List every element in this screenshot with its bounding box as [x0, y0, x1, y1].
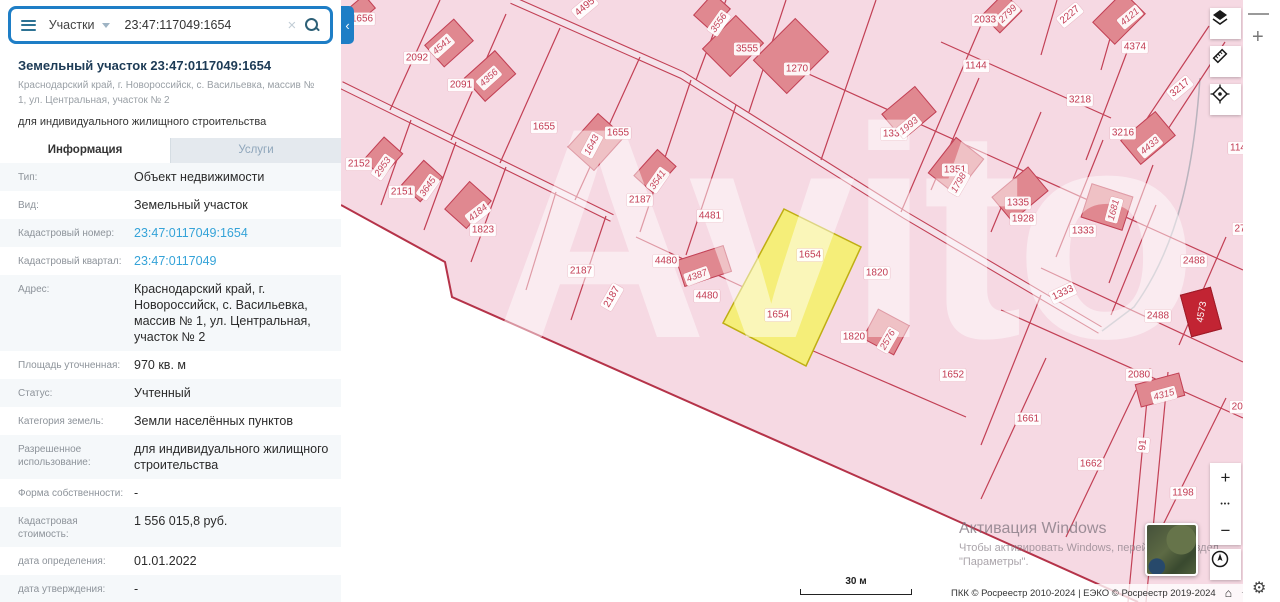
scale-bar: 30 м	[800, 576, 912, 595]
more-tools-button[interactable]: •••	[1220, 501, 1230, 508]
parcel-usage-line: для индивидуального жилищного строительс…	[18, 116, 323, 128]
info-row: Форма собственности:-	[0, 479, 341, 507]
parcel-title: Земельный участок 23:47:0117049:1654	[18, 58, 323, 73]
scale-bar-label: 30 м	[800, 576, 912, 587]
info-row: Кадастровый квартал:23:47:0117049	[0, 247, 341, 275]
menu-hamburger-icon[interactable]	[21, 20, 36, 31]
info-row-value-link[interactable]: 23:47:0117049	[134, 253, 217, 269]
info-row-label: Кадастровый квартал:	[18, 253, 134, 269]
info-row: Кадастровый номер:23:47:0117049:1654	[0, 219, 341, 247]
info-row-label: Вид:	[18, 197, 134, 213]
identify-button[interactable]	[1210, 84, 1241, 115]
info-row-label: Разрешенное использование:	[18, 441, 134, 473]
clear-search-icon[interactable]: ×	[288, 17, 297, 34]
info-row: Кадастровая стоимость:1 556 015,8 руб.	[0, 507, 341, 547]
info-row-label: дата определения:	[18, 553, 134, 569]
search-icon[interactable]	[304, 17, 320, 33]
info-row: Разрешенное использование:для индивидуал…	[0, 435, 341, 479]
info-row-value: Краснодарский край, г. Новороссийск, с. …	[134, 281, 331, 345]
map-canvas[interactable]: Avito 1656209245412091435616551643165521…	[341, 0, 1243, 602]
panel-tabs: Информация Услуги	[0, 138, 341, 164]
chevron-down-icon[interactable]	[102, 23, 110, 28]
info-row: дата определения:01.01.2022	[0, 547, 341, 575]
info-row-value: 970 кв. м	[134, 357, 186, 373]
info-row: Адрес:Краснодарский край, г. Новороссийс…	[0, 275, 341, 351]
ruler-icon	[1210, 46, 1230, 66]
viewer-zoom-out-icon[interactable]	[1248, 13, 1269, 15]
attribution-text: ПКК © Росреестр 2010-2024 | ЕЭКО © Росре…	[951, 588, 1216, 599]
layers-button[interactable]	[1210, 8, 1241, 39]
info-row-label: Площадь уточненная:	[18, 357, 134, 373]
info-row-value: для индивидуального жилищного строительс…	[134, 441, 331, 473]
search-bar: Участки ×	[8, 6, 333, 44]
info-row-label: дата утверждения:	[18, 581, 134, 597]
info-row-value: -	[134, 485, 138, 501]
viewer-zoom-in-icon[interactable]: +	[1252, 26, 1264, 49]
measure-button[interactable]	[1210, 46, 1241, 77]
layers-icon	[1210, 8, 1230, 28]
info-row-label: Адрес:	[18, 281, 134, 345]
info-row-value: Учтенный	[134, 385, 191, 401]
attribution-bar: ПКК © Росреестр 2010-2024 | ЕЭКО © Росре…	[941, 584, 1243, 602]
info-row: Категория земель:Земли населённых пункто…	[0, 407, 341, 435]
info-row-label: Категория земель:	[18, 413, 134, 429]
zoom-in-button[interactable]: +	[1221, 469, 1231, 486]
info-row-label: Статус:	[18, 385, 134, 401]
tab-information[interactable]: Информация	[0, 138, 170, 163]
panel-collapse-button[interactable]: ‹	[341, 6, 354, 44]
info-row-value: Земельный участок	[134, 197, 248, 213]
sidebar-panel: Участки × Земельный участок 23:47:011704…	[0, 0, 341, 602]
info-row-value: 01.01.2022	[134, 553, 197, 569]
cadastral-map-svg	[341, 0, 1243, 602]
search-category-dropdown[interactable]: Участки	[49, 18, 95, 32]
info-row-label: Тип:	[18, 169, 134, 185]
info-row-value: 1 556 015,8 руб.	[134, 513, 227, 541]
search-input[interactable]	[123, 17, 288, 33]
info-row-label: Кадастровая стоимость:	[18, 513, 134, 541]
gear-icon[interactable]: ⚙	[1252, 578, 1266, 598]
info-row: дата утверждения:-	[0, 575, 341, 602]
info-row-value: Земли населённых пунктов	[134, 413, 293, 429]
info-row-value: Объект недвижимости	[134, 169, 264, 185]
home-icon[interactable]: ⌂	[1225, 586, 1232, 600]
geolocation-button[interactable]	[1210, 549, 1241, 580]
zoom-panel: + ••• −	[1210, 463, 1241, 545]
info-row-value-link[interactable]: 23:47:0117049:1654	[134, 225, 248, 241]
viewer-strip: + ⚙	[1243, 0, 1280, 602]
info-row: Площадь уточненная:970 кв. м	[0, 351, 341, 379]
tab-services[interactable]: Услуги	[170, 138, 341, 163]
info-row: Статус:Учтенный	[0, 379, 341, 407]
basemap-thumbnail[interactable]	[1145, 523, 1198, 576]
info-row-value: -	[134, 581, 138, 597]
parcel-address-subtitle: Краснодарский край, г. Новороссийск, с. …	[18, 79, 323, 108]
geolocation-icon	[1210, 549, 1230, 569]
info-row: Тип:Объект недвижимости	[0, 163, 341, 191]
info-row: Вид:Земельный участок	[0, 191, 341, 219]
crosshair-icon	[1210, 84, 1230, 104]
info-row-label: Кадастровый номер:	[18, 225, 134, 241]
collapse-chevron-icon: ‹	[345, 18, 349, 33]
zoom-out-button[interactable]: −	[1221, 522, 1231, 539]
pkk-app: Участки × Земельный участок 23:47:011704…	[0, 0, 1280, 602]
info-table: Тип:Объект недвижимостиВид:Земельный уча…	[0, 163, 341, 602]
info-row-label: Форма собственности:	[18, 485, 134, 501]
